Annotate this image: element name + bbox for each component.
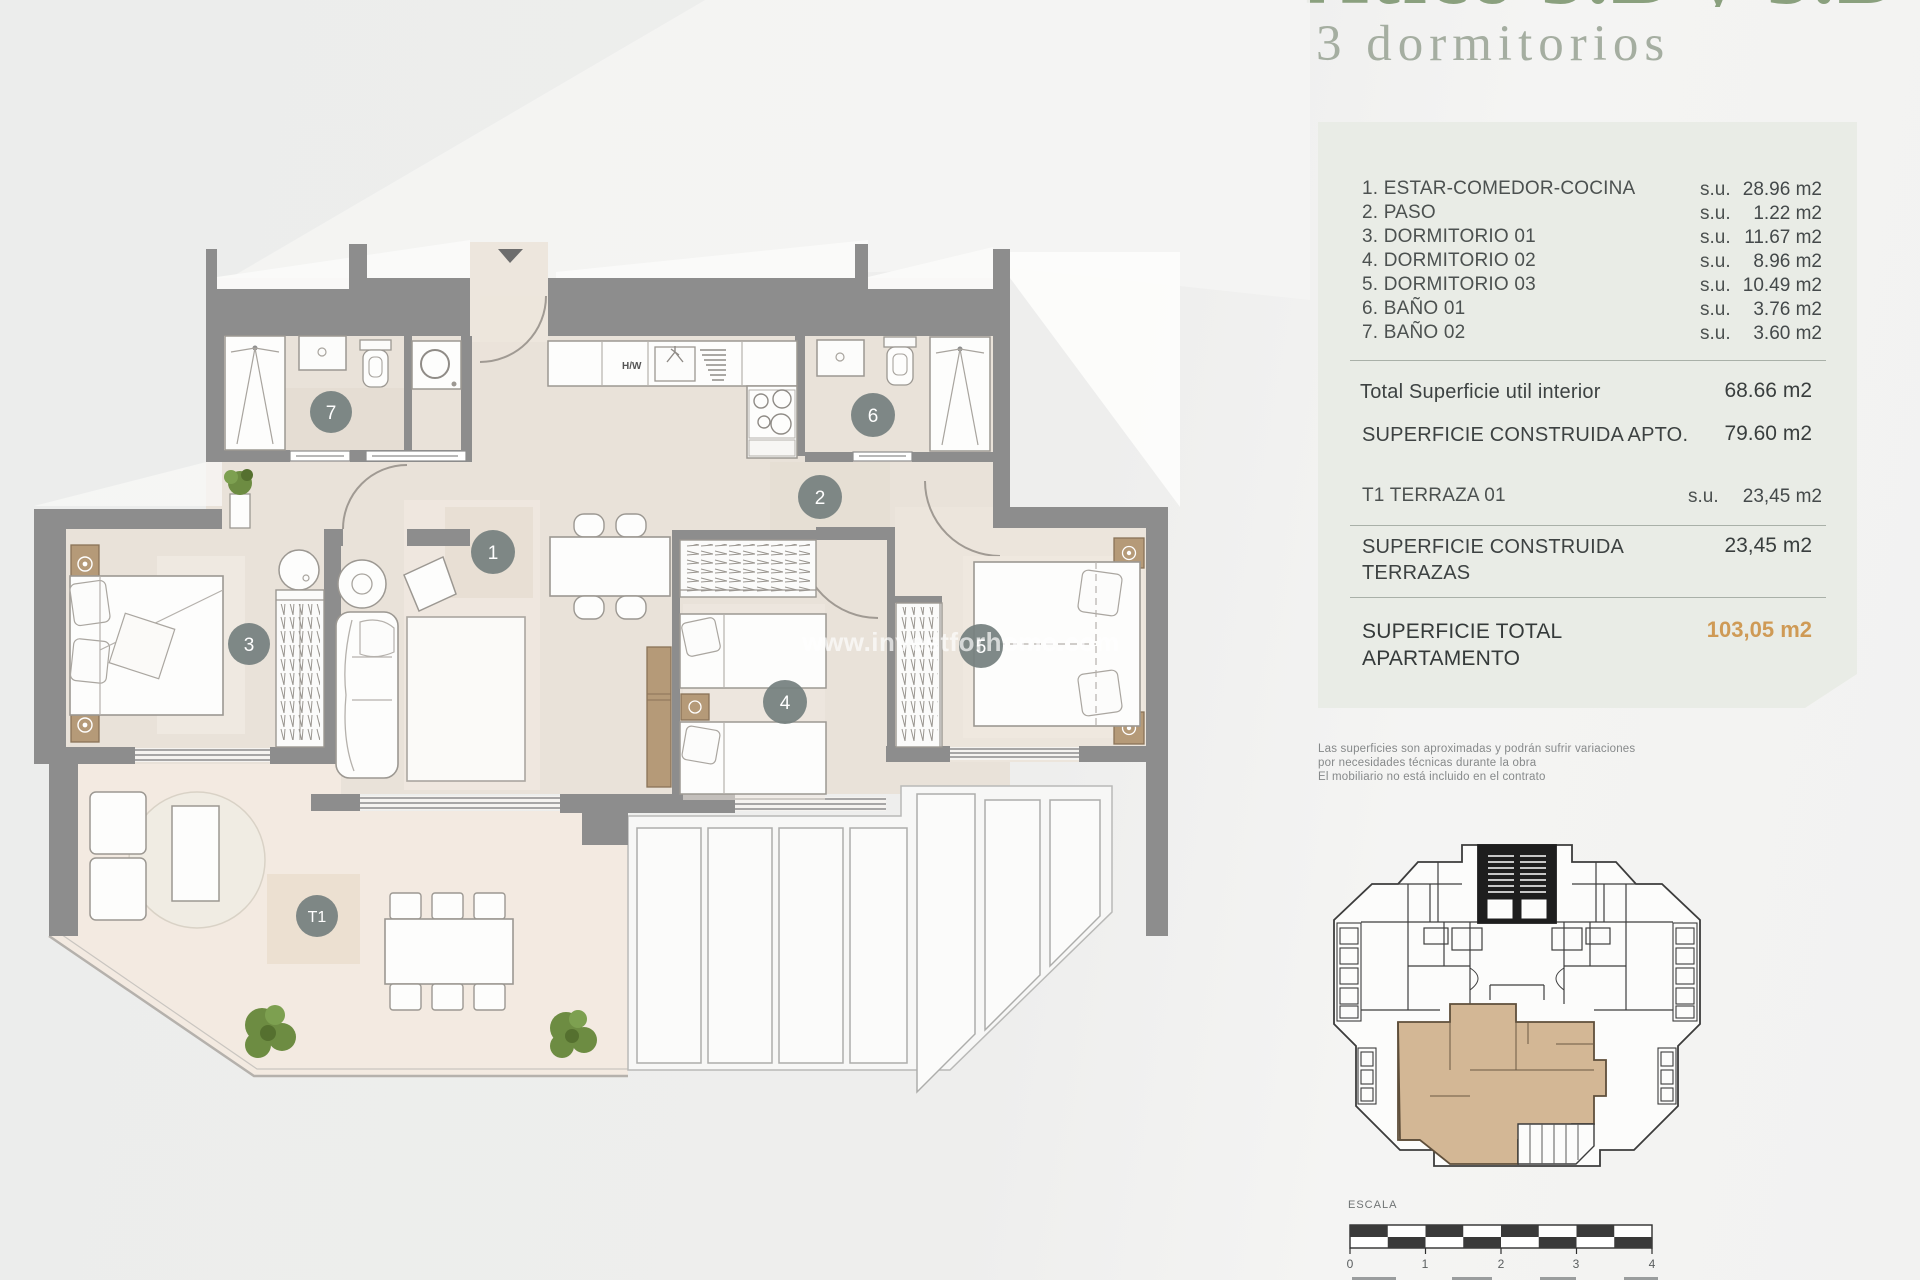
svg-text:2: 2 bbox=[1498, 1257, 1505, 1271]
svg-text:4: 4 bbox=[780, 693, 791, 714]
svg-text:6: 6 bbox=[868, 406, 879, 427]
svg-text:T1: T1 bbox=[308, 909, 327, 926]
svg-text:7: 7 bbox=[326, 403, 337, 424]
svg-text:0: 0 bbox=[1347, 1257, 1354, 1271]
svg-text:1: 1 bbox=[1422, 1257, 1429, 1271]
svg-text:2: 2 bbox=[815, 488, 826, 509]
svg-text:www.investforhome.com: www.investforhome.com bbox=[801, 627, 1119, 657]
svg-text:3: 3 bbox=[244, 635, 255, 656]
svg-text:1: 1 bbox=[488, 543, 499, 564]
svg-text:4: 4 bbox=[1649, 1257, 1656, 1271]
svg-text:H/W: H/W bbox=[622, 361, 642, 372]
svg-text:3: 3 bbox=[1573, 1257, 1580, 1271]
